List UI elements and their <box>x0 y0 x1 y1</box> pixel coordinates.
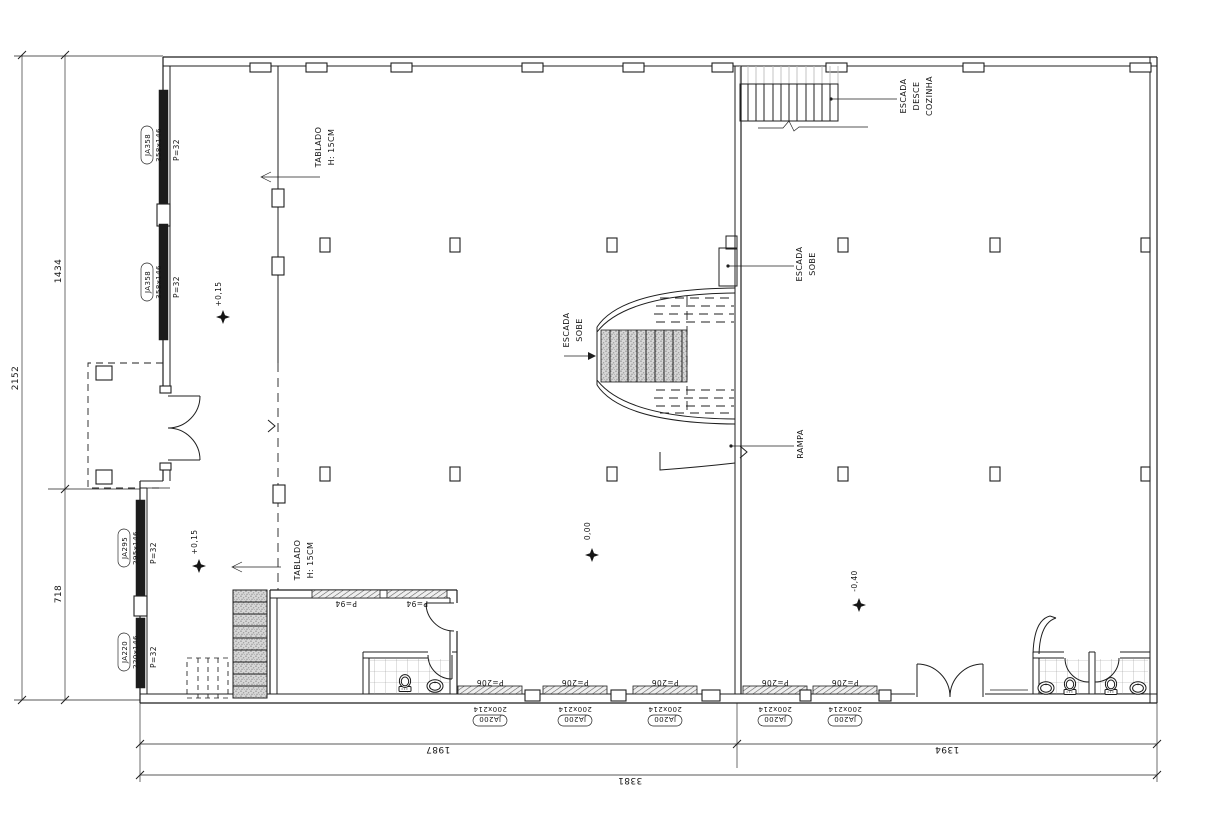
label-tablado-upper-1: TABLADO <box>314 127 323 169</box>
entry-door <box>917 664 983 697</box>
window-sill: P=32 <box>149 542 158 564</box>
right-bathrooms <box>1033 616 1150 695</box>
left-wall-windows <box>134 90 200 688</box>
label-escada-wall-2: SOBE <box>808 252 817 276</box>
level-value: +0,15 <box>190 530 199 555</box>
label-tablado-upper-2: H: 15CM <box>327 129 336 166</box>
small-room: P=94 P=94 <box>270 590 457 694</box>
window-size: 295x146 <box>132 531 140 565</box>
stair-basement <box>187 590 267 698</box>
window-tag: JA358 <box>144 271 152 294</box>
dim-left-lower: 718 <box>54 585 64 603</box>
dividing-wall <box>735 66 747 694</box>
level-marker-icon <box>216 310 230 324</box>
window-tag: JA200 <box>479 715 502 723</box>
room-window <box>387 590 447 598</box>
window-tag: JA358 <box>144 134 152 157</box>
dim-left-upper: 1434 <box>54 259 64 284</box>
bottom-window-labels: P=206 P=206 P=206 P=206 P=206 200x214 20… <box>473 678 862 726</box>
dim-left-total: 2152 <box>11 366 21 391</box>
stair-central-labels: ESCADA SOBE ESCADA SOBE RAMPA <box>562 246 817 458</box>
label-escada-sobe-2: SOBE <box>575 318 584 342</box>
stair-kitchen-label: ESCADA DESCE COZINHA <box>899 76 934 116</box>
dim-bottom-total: 3381 <box>618 775 643 785</box>
dim-bottom-left: 1987 <box>426 744 451 754</box>
window-tag: JA295 <box>121 537 129 560</box>
label-tablado-lower-1: TABLADO <box>293 540 302 582</box>
label-tablado-lower-2: H: 15CM <box>306 542 315 579</box>
floor-plan-canvas: 2152 1434 718 1987 1394 3381 <box>0 0 1206 821</box>
toilet-icon <box>1064 678 1076 695</box>
sink-icon <box>1038 682 1054 695</box>
room-window <box>312 590 380 598</box>
window-sill: P=206 <box>831 678 858 687</box>
level-value: -0,40 <box>850 570 859 591</box>
window-tag: JA200 <box>654 715 677 723</box>
stair-central <box>597 236 794 470</box>
window-sill: P=206 <box>761 678 788 687</box>
label-desce: DESCE <box>912 82 921 111</box>
sink-icon <box>1130 682 1146 695</box>
sink-icon <box>427 680 443 693</box>
ramp-outline <box>660 452 735 470</box>
window-size: 358x146 <box>155 128 163 162</box>
window-size: 200x214 <box>828 705 862 713</box>
level-marker-icon <box>852 598 866 612</box>
level-value: 0,00 <box>583 522 592 540</box>
window-sill: P=32 <box>149 646 158 668</box>
window-size: 200x214 <box>648 705 682 713</box>
window-tag: JA200 <box>764 715 787 723</box>
window-size: 358x146 <box>155 265 163 299</box>
canopy-outline <box>88 363 163 488</box>
tablado-edges <box>268 66 285 590</box>
dimension-lines: 2152 1434 718 1987 1394 3381 <box>11 51 1161 785</box>
window-sill: P=206 <box>651 678 678 687</box>
level-value: +0,15 <box>214 282 223 307</box>
left-window-labels: JA358 358x146 P=32 JA358 358x146 P=32 JA… <box>118 126 181 671</box>
label-rampa: RAMPA <box>796 429 805 459</box>
window-sill: P=206 <box>561 678 588 687</box>
window-size: 220x146 <box>132 635 140 669</box>
label-cozinha: COZINHA <box>925 76 934 116</box>
window-tag: JA200 <box>564 715 587 723</box>
window-tag: JA200 <box>834 715 857 723</box>
window-sill-label: P=94 <box>406 599 428 608</box>
level-markers: +0,15 +0,15 0,00 -0,40 <box>190 282 866 612</box>
toilet-icon <box>399 675 411 692</box>
curved-wall <box>1039 618 1056 654</box>
window-size: 200x214 <box>473 705 507 713</box>
level-marker-icon <box>192 559 206 573</box>
window-size: 200x214 <box>558 705 592 713</box>
break-line <box>758 121 868 131</box>
columns <box>250 63 1151 481</box>
window-sill: P=206 <box>476 678 503 687</box>
dim-bottom-right: 1394 <box>935 744 960 754</box>
toilet-icon <box>1105 678 1117 695</box>
direction-chevron <box>268 420 275 432</box>
window-tag: JA220 <box>121 641 129 664</box>
label-escada-sobe-1: ESCADA <box>562 312 571 347</box>
window-sill: P=32 <box>172 139 181 161</box>
level-marker-icon <box>585 548 599 562</box>
window-sill: P=32 <box>172 276 181 298</box>
window-sill-label: P=94 <box>335 599 357 608</box>
window-size: 200x214 <box>758 705 792 713</box>
floor-plan-page: 2152 1434 718 1987 1394 3381 <box>0 0 1206 821</box>
stair-kitchen <box>740 66 897 131</box>
label-escada: ESCADA <box>899 78 908 113</box>
arrow-head <box>588 352 596 360</box>
label-escada-wall-1: ESCADA <box>795 246 804 281</box>
bottom-windows <box>458 664 1028 701</box>
